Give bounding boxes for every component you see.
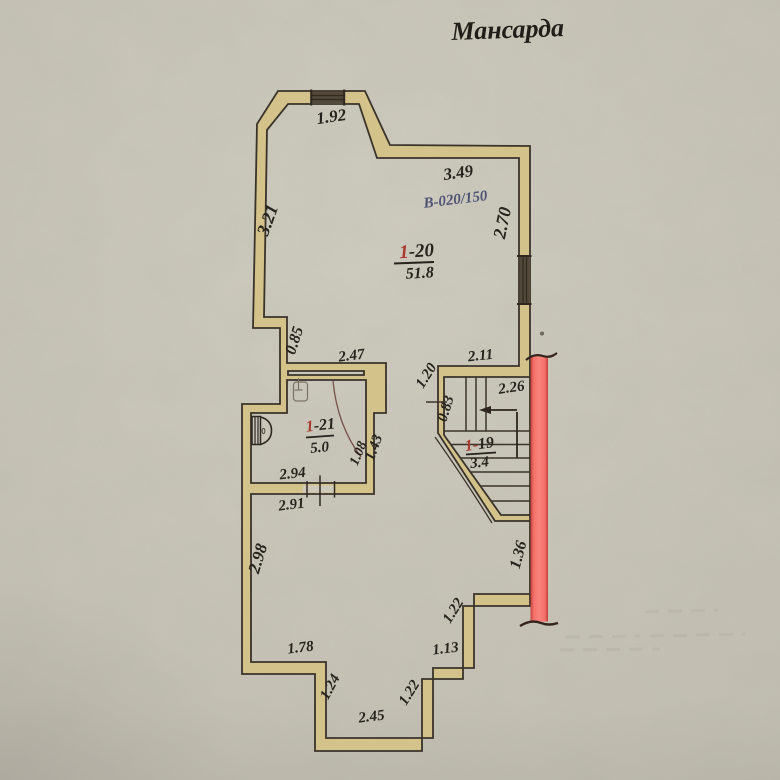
svg-text:5.0: 5.0: [310, 439, 331, 457]
svg-text:2.91: 2.91: [277, 495, 306, 514]
svg-text:2.47: 2.47: [337, 346, 366, 365]
svg-text:2.11: 2.11: [466, 347, 494, 366]
svg-text:3.4: 3.4: [468, 454, 490, 472]
svg-text:1.78: 1.78: [287, 638, 316, 657]
svg-text:51.8: 51.8: [405, 264, 434, 282]
svg-text:2.94: 2.94: [278, 465, 307, 484]
svg-text:1-20: 1-20: [399, 240, 436, 263]
svg-text:1-21: 1-21: [305, 415, 336, 435]
svg-text:2.45: 2.45: [357, 707, 386, 726]
svg-text:Мансарда: Мансарда: [450, 13, 565, 46]
svg-text:1.13: 1.13: [432, 639, 461, 658]
